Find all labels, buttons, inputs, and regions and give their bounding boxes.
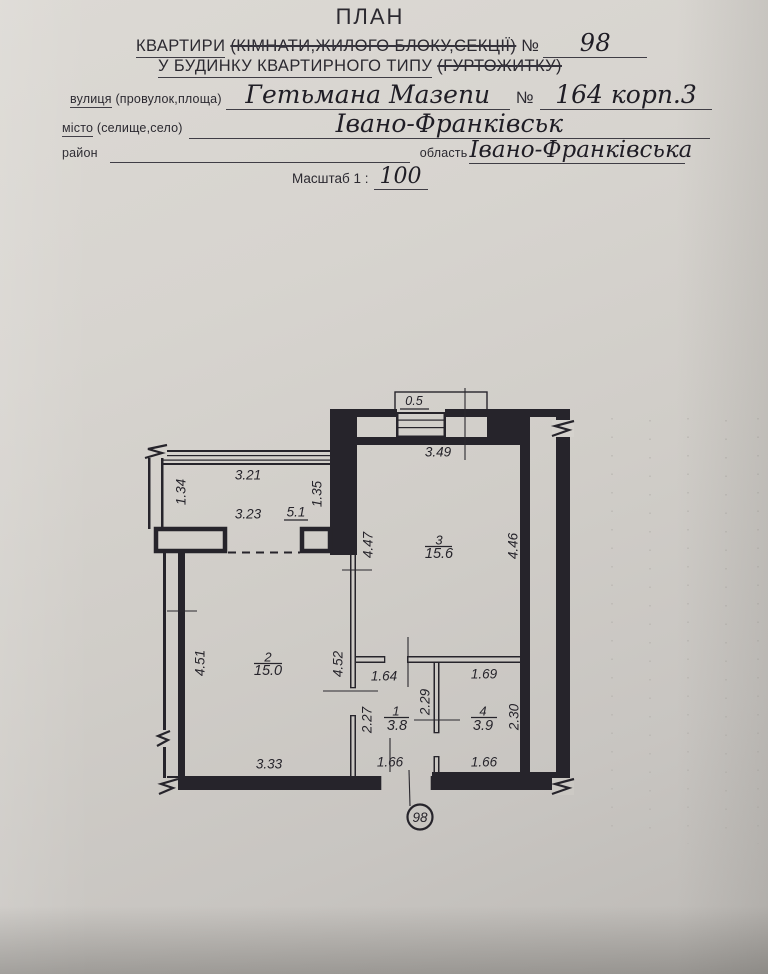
dim-bath-right: 2.30 <box>507 703 522 731</box>
room3-area: 15.6 <box>425 546 454 562</box>
dim-hall-left: 2.27 <box>360 706 375 734</box>
district-label: район <box>62 146 98 160</box>
scanned-floor-plan-sheet: ПЛАН КВАРТИРИ (КІМНАТИ,ЖИЛОГО БЛОКУ,СЕКЦ… <box>0 0 768 974</box>
street-no-sign: № <box>516 89 534 108</box>
page-title: ПЛАН <box>300 4 440 30</box>
city-label-rest: (селище,село) <box>97 121 183 135</box>
room1-area: 3.8 <box>387 718 407 734</box>
room4-number: 4 <box>479 704 486 719</box>
dim-room2-left: 4.51 <box>193 650 208 676</box>
street-label-rest: (провулок,площа) <box>115 92 221 106</box>
street-value: Гетьмана Мазепи <box>226 80 510 110</box>
room2-area: 15.0 <box>254 663 282 679</box>
floor-plan-drawing: 98 0.5 3.49 3.21 3.23 5.1 1.64 1.69 3.33… <box>128 383 768 845</box>
scale-label: Масштаб 1 : <box>292 171 369 186</box>
entrance-badge: 98 <box>408 805 433 830</box>
paper-grid-dots <box>612 418 758 844</box>
wall-piers <box>156 529 330 551</box>
entrance-badge-number: 98 <box>412 810 428 825</box>
street-building-value: 164 корп.3 <box>540 80 712 110</box>
dim-balcony-top: 3.21 <box>235 468 261 483</box>
dim-bath-bottom: 1.66 <box>471 755 498 770</box>
apartment-number-value: 98 <box>543 29 647 58</box>
dim-niche: 0.5 <box>405 394 422 408</box>
region-label: область <box>420 146 468 160</box>
room4-area: 3.9 <box>473 718 493 734</box>
district-region-line: район область Івано-Франківська <box>62 137 712 164</box>
apartment-label: КВАРТИРИ <box>136 37 225 58</box>
dim-hall-bottom: 1.66 <box>377 755 404 770</box>
city-label-word: місто <box>62 121 93 137</box>
dim-room2-right: 4.52 <box>331 650 346 677</box>
apartment-line: КВАРТИРИ (КІМНАТИ,ЖИЛОГО БЛОКУ,СЕКЦІЇ) №… <box>136 29 647 58</box>
room1-number: 1 <box>392 704 399 719</box>
dim-balcony-bottom: 3.23 <box>235 507 262 522</box>
wall-break-icons <box>145 420 574 795</box>
city-line: місто (селище,село) Івано-Франківськ <box>62 109 710 139</box>
dim-room3-right: 4.46 <box>506 532 521 559</box>
dim-balcony-area: 5.1 <box>287 505 306 520</box>
room-labels: 3 15.6 2 15.0 1 3.8 4 3.9 <box>254 533 493 735</box>
building-type-label: У БУДИНКУ КВАРТИРНОГО ТИПУ <box>158 57 432 78</box>
dim-bath-top: 1.69 <box>471 667 498 682</box>
apartment-struck-options: (КІМНАТИ,ЖИЛОГО БЛОКУ,СЕКЦІЇ) <box>230 37 516 56</box>
dim-hall-top: 1.64 <box>371 669 397 684</box>
dim-room3-left: 4.47 <box>361 531 376 558</box>
scale-value: 100 <box>374 164 428 190</box>
dim-balcony-left: 1.34 <box>174 479 189 505</box>
building-type-line: У БУДИНКУ КВАРТИРНОГО ТИПУ (ГУРТОЖИТКУ) <box>158 57 567 78</box>
dim-hall-divider: 2.29 <box>418 688 433 716</box>
street-line: вулиця (провулок,площа) Гетьмана Мазепи … <box>70 80 712 110</box>
scale-line: Масштаб 1 : 100 <box>292 164 428 190</box>
dim-balcony-right: 1.35 <box>310 480 325 507</box>
region-value: Івано-Франківська <box>469 137 685 164</box>
apartment-no-sign: № <box>521 37 539 56</box>
city-value: Івано-Франківськ <box>189 109 710 139</box>
dim-room2-bottom: 3.33 <box>256 757 283 772</box>
dim-window-wall: 3.49 <box>425 445 452 460</box>
window-icon <box>396 412 446 438</box>
street-label-word: вулиця <box>70 92 112 108</box>
building-type-struck: (ГУРТОЖИТКУ) <box>437 57 562 76</box>
partitions <box>350 555 520 776</box>
